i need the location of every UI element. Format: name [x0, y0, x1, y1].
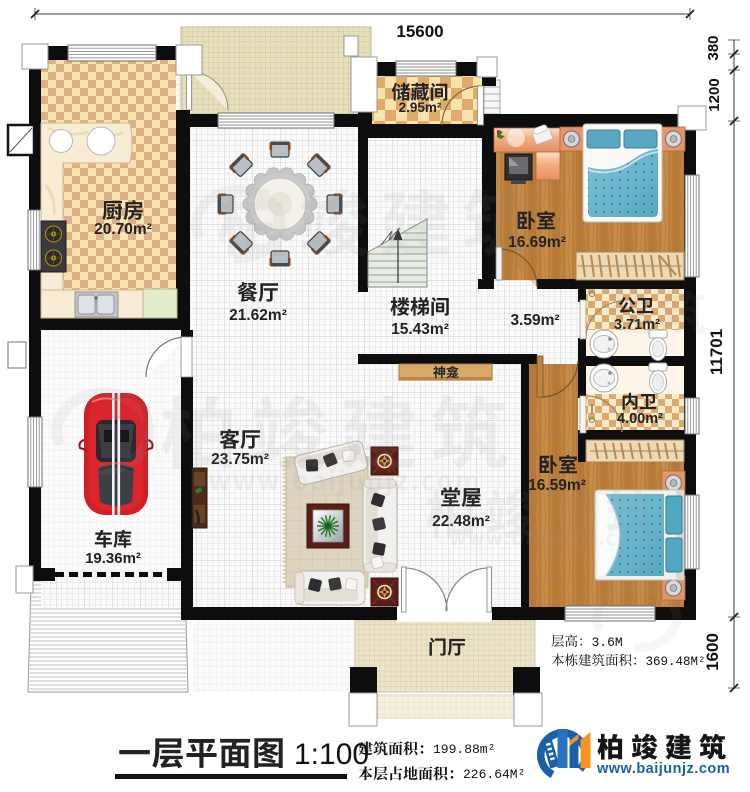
svg-text:www.baijunjz.com: www.baijunjz.com: [596, 761, 730, 777]
svg-text:15.43m²: 15.43m²: [391, 321, 449, 338]
svg-text:199.88m²: 199.88m²: [433, 742, 495, 757]
svg-text:11701: 11701: [707, 329, 726, 375]
svg-text:1600: 1600: [703, 633, 722, 671]
svg-text:2.95m²: 2.95m²: [399, 100, 442, 115]
svg-text:226.64M²: 226.64M²: [463, 767, 525, 782]
svg-text:19.36m²: 19.36m²: [85, 550, 141, 567]
svg-text:3.59m²: 3.59m²: [510, 312, 559, 329]
svg-text:4.00m²: 4.00m²: [617, 411, 663, 427]
svg-text:369.48M²: 369.48M²: [646, 655, 706, 669]
svg-text:3.6M: 3.6M: [592, 635, 623, 650]
svg-text:1:100: 1:100: [294, 738, 369, 771]
svg-text:380: 380: [705, 35, 722, 60]
svg-text:1200: 1200: [706, 78, 723, 111]
svg-text:21.62m²: 21.62m²: [229, 307, 287, 324]
svg-text:15600: 15600: [396, 22, 443, 41]
svg-text:20.70m²: 20.70m²: [94, 221, 152, 238]
